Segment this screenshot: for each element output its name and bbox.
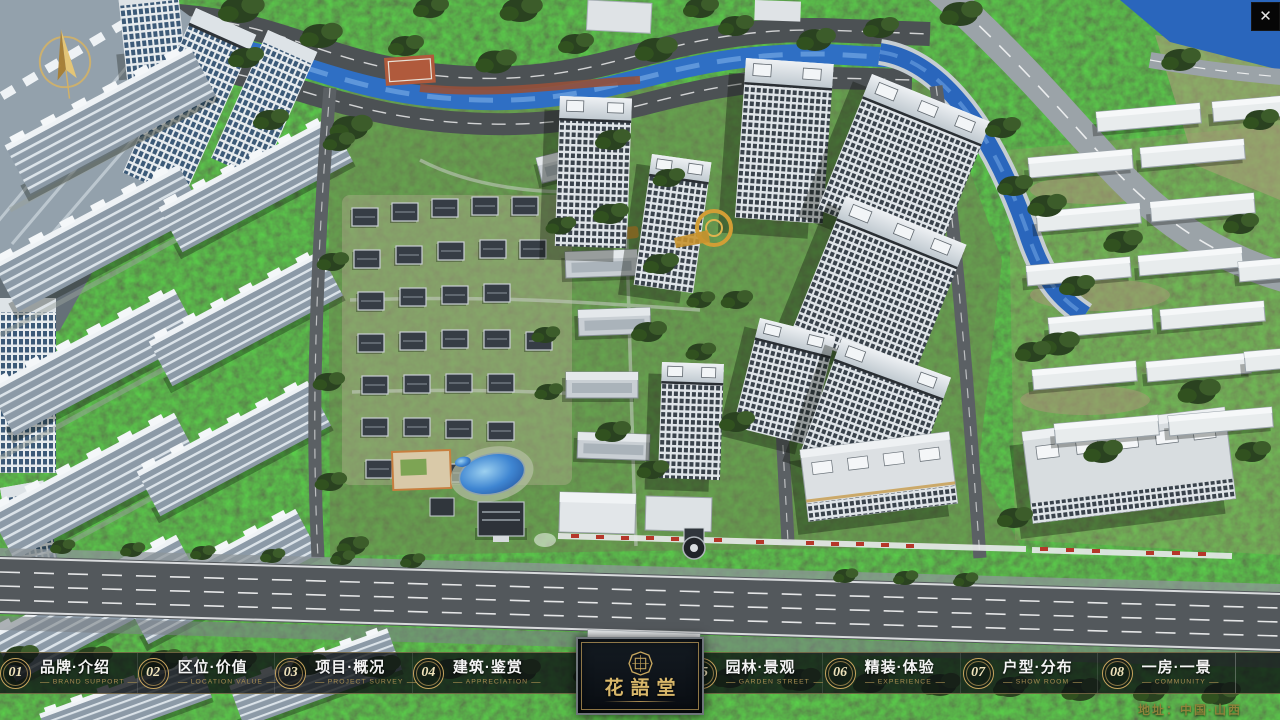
close-icon: ✕: [1259, 9, 1272, 24]
nav-number-badge: 03: [275, 658, 306, 689]
nav-label-en: EXPERIENCE: [865, 679, 945, 686]
nav-number-badge: 06: [825, 658, 856, 689]
nav-label-en: PROJECT SURVEY: [315, 679, 416, 686]
nav-label-zh: 建筑·鉴赏: [453, 660, 523, 675]
nav-item-location-value[interactable]: 02 区位·价值LOCATION VALUE: [137, 653, 275, 693]
nav-label-en: COMMUNITY: [1142, 679, 1219, 686]
nav-label-zh: 园林·景观: [726, 660, 796, 675]
nav-label-zh: 精装·体验: [865, 660, 935, 675]
nav-label-zh: 区位·价值: [178, 660, 248, 675]
nav-label-zh: 项目·概况: [315, 660, 385, 675]
close-button[interactable]: ✕: [1251, 2, 1280, 31]
nav-number: 02: [146, 666, 160, 680]
nav-number-badge: 04: [413, 658, 444, 689]
nav-number-badge: 02: [138, 658, 169, 689]
nav-number-badge: 07: [963, 658, 994, 689]
nav-item-architecture-appreciation[interactable]: 04 建筑·鉴赏APPRECIATION: [412, 653, 550, 693]
nav-label-en: GARDEN STREET: [726, 679, 823, 686]
nav-number: 07: [971, 666, 985, 680]
nav-label-en: SHOW ROOM: [1003, 679, 1082, 686]
logo-title: 花語堂: [604, 679, 682, 698]
address-text: 地址：中国·山西: [1138, 701, 1242, 718]
nav-number: 06: [833, 666, 847, 680]
nav-item-interior-experience[interactable]: 06 精装·体验EXPERIENCE: [822, 653, 960, 693]
nav-item-garden-landscape[interactable]: 05 园林·景观GARDEN STREET: [686, 653, 823, 693]
logo-tagline-rule: [604, 701, 676, 702]
nav-tail-spacer: [1235, 653, 1280, 693]
logo-plaque[interactable]: 花語堂: [576, 637, 704, 715]
nav-label-en: BRAND SUPPORT: [40, 679, 137, 686]
nav-label-en: LOCATION VALUE: [178, 679, 276, 686]
nav-number-badge: 08: [1102, 658, 1133, 689]
nav-item-floorplan-distribution[interactable]: 07 户型·分布SHOW ROOM: [960, 653, 1098, 693]
nav-number-badge: 01: [0, 658, 31, 689]
masterplan-render: [0, 0, 1280, 720]
nav-label-zh: 品牌·介绍: [40, 660, 110, 675]
nav-number: 08: [1110, 666, 1124, 680]
nav-label-zh: 户型·分布: [1003, 660, 1073, 675]
nav-number: 01: [9, 666, 23, 680]
seal-emblem-icon: [628, 651, 653, 676]
nav-item-one-room-one-view[interactable]: 08 一房·一景COMMUNITY: [1097, 653, 1235, 693]
nav-item-project-overview[interactable]: 03 项目·概况PROJECT SURVEY: [274, 653, 412, 693]
nav-label-en: APPRECIATION: [453, 679, 541, 686]
nav-label-zh: 一房·一景: [1142, 660, 1212, 675]
nav-number: 04: [421, 666, 435, 680]
nav-item-brand-intro[interactable]: 01 品牌·介绍BRAND SUPPORT: [0, 653, 137, 693]
compass-north-icon: [29, 17, 101, 108]
nav-number: 03: [284, 666, 298, 680]
